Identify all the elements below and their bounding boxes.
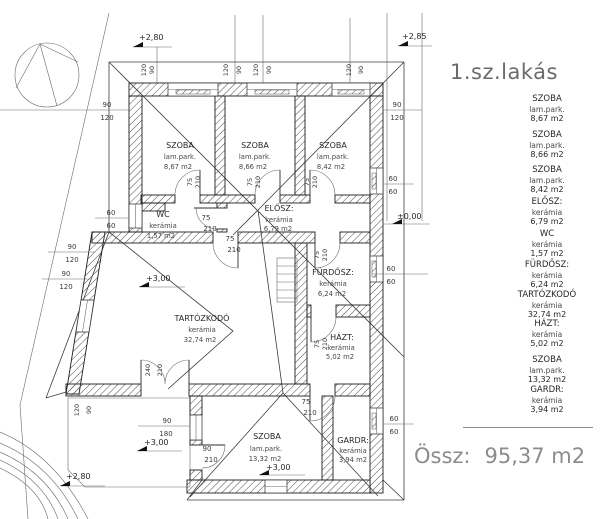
svg-text:13,32 m2: 13,32 m2 — [249, 455, 282, 463]
svg-text:ELŐSZ:: ELŐSZ: — [264, 203, 293, 213]
svg-text:210: 210 — [254, 176, 262, 188]
level-living: +3,00 — [146, 274, 171, 283]
svg-text:SZOBA: SZOBA — [319, 141, 347, 150]
svg-text:kerámia: kerámia — [327, 344, 355, 352]
svg-text:90: 90 — [62, 270, 71, 278]
legend-item-hazt: HÁZT: kerámia 5,02 m2 — [492, 319, 600, 349]
svg-text:8,42 m2: 8,42 m2 — [317, 163, 345, 171]
svg-text:32,74 m2: 32,74 m2 — [184, 336, 217, 344]
svg-text:120: 120 — [252, 64, 260, 76]
room-labels: SZOBA lam.park. 8,67 m2 SZOBA lam.park. … — [147, 141, 369, 464]
svg-text:lam.park.: lam.park. — [317, 153, 349, 161]
level-bedroom: +3,00 — [266, 463, 291, 472]
svg-text:210: 210 — [321, 249, 329, 261]
window — [76, 300, 94, 332]
svg-text:240: 240 — [144, 364, 152, 376]
level-top-right: +2,85 — [402, 32, 427, 41]
svg-text:75: 75 — [246, 178, 254, 186]
svg-text:90: 90 — [393, 101, 402, 109]
level-terrace: +3,00 — [144, 438, 169, 447]
svg-text:120: 120 — [140, 64, 148, 76]
north-arrow-icon — [15, 43, 79, 107]
window — [370, 256, 383, 282]
room-label-gardr: GARDR: kerámia 3,94 m2 — [337, 436, 368, 464]
svg-text:120: 120 — [222, 64, 230, 76]
svg-text:WC: WC — [156, 210, 170, 219]
room-label-hazt: HÁZT: kerámia 5,02 m2 — [326, 331, 355, 361]
svg-text:210: 210 — [156, 364, 164, 376]
svg-text:75: 75 — [313, 340, 321, 348]
legend-item-szoba4: SZOBA lam.park. 13,32 m2 — [492, 355, 600, 385]
svg-text:8,66 m2: 8,66 m2 — [239, 163, 267, 171]
svg-text:60: 60 — [390, 415, 399, 423]
svg-text:60: 60 — [387, 265, 396, 273]
legend-item-szoba2: SZOBA lam.park. 8,66 m2 — [492, 130, 600, 160]
svg-text:90: 90 — [85, 406, 93, 414]
window — [265, 480, 287, 493]
svg-text:120: 120 — [390, 114, 403, 122]
svg-text:kerámia: kerámia — [339, 447, 367, 455]
svg-text:6,24 m2: 6,24 m2 — [318, 290, 346, 298]
svg-text:210: 210 — [311, 176, 319, 188]
room-label-szoba2: SZOBA lam.park. 8,66 m2 — [239, 141, 271, 171]
svg-text:SZOBA: SZOBA — [253, 432, 281, 441]
svg-text:120: 120 — [73, 404, 81, 416]
total-area: Össz:95,37 m2 — [414, 444, 585, 468]
svg-text:kerámia: kerámia — [188, 326, 216, 334]
svg-text:60: 60 — [387, 278, 396, 286]
legend-item-szoba3: SZOBA lam.park. 8,42 m2 — [492, 165, 600, 195]
svg-text:60: 60 — [389, 175, 398, 183]
svg-text:60: 60 — [107, 209, 116, 217]
room-label-szoba1: SZOBA lam.park. 8,67 m2 — [164, 141, 196, 171]
room-label-szoba4: SZOBA lam.park. 13,32 m2 — [249, 432, 282, 463]
svg-text:90: 90 — [265, 66, 273, 74]
svg-text:210: 210 — [227, 246, 240, 254]
svg-text:90: 90 — [163, 417, 172, 425]
legend-item-furdosz: FÜRDŐSZ: kerámia 6,24 m2 — [492, 260, 600, 290]
legend-item-wc: WC kerámia 1,57 m2 — [492, 229, 600, 259]
svg-text:60: 60 — [107, 222, 116, 230]
svg-text:120: 120 — [100, 114, 113, 122]
legend-divider — [463, 427, 593, 428]
room-label-szoba3: SZOBA lam.park. 8,42 m2 — [317, 141, 349, 171]
legend-item-tartozkodo: TARTÓZKODÓ kerámia 32,74 m2 — [492, 290, 600, 320]
svg-text:75: 75 — [186, 178, 194, 186]
drawing-title: 1.sz.lakás — [450, 60, 558, 84]
svg-text:1,57 m2: 1,57 m2 — [147, 232, 175, 240]
svg-text:kerámia: kerámia — [319, 280, 347, 288]
room-label-wc: WC kerámia 1,57 m2 — [147, 210, 177, 240]
svg-text:120: 120 — [65, 256, 78, 264]
level-terrace-corner: +2,80 — [66, 472, 91, 481]
svg-text:210: 210 — [194, 176, 202, 188]
svg-text:90: 90 — [103, 101, 112, 109]
svg-text:210: 210 — [204, 456, 217, 464]
svg-text:90: 90 — [68, 243, 77, 251]
window — [129, 204, 142, 228]
svg-text:75: 75 — [202, 214, 211, 222]
svg-text:210: 210 — [303, 409, 316, 417]
window — [332, 83, 370, 96]
svg-text:90: 90 — [235, 66, 243, 74]
window — [168, 83, 218, 96]
svg-text:lam.park.: lam.park. — [164, 153, 196, 161]
svg-text:SZOBA: SZOBA — [241, 141, 269, 150]
svg-text:75: 75 — [302, 398, 311, 406]
svg-text:kerámia: kerámia — [265, 216, 293, 224]
svg-text:3,94 m2: 3,94 m2 — [339, 456, 367, 464]
svg-text:60: 60 — [390, 428, 399, 436]
svg-text:lam.park.: lam.park. — [239, 153, 271, 161]
svg-text:210: 210 — [203, 225, 216, 233]
svg-text:6,79 m2: 6,79 m2 — [264, 225, 292, 233]
window — [247, 83, 297, 96]
svg-text:SZOBA: SZOBA — [166, 141, 194, 150]
level-entry: ±0,00 — [397, 212, 422, 221]
svg-text:180: 180 — [159, 430, 172, 438]
svg-text:75: 75 — [313, 251, 321, 259]
dimension-labels: 90120 6060 90120 90120 90120 6060 6060 6… — [59, 101, 403, 464]
svg-text:75: 75 — [303, 178, 311, 186]
svg-text:kerámia: kerámia — [149, 222, 177, 230]
level-top-left: +2,80 — [139, 33, 164, 42]
window — [370, 408, 383, 434]
window — [370, 168, 383, 194]
svg-text:5,02 m2: 5,02 m2 — [326, 353, 354, 361]
total-area-label: Össz: — [414, 444, 471, 468]
svg-text:75: 75 — [226, 235, 235, 243]
room-label-elosz: ELŐSZ: kerámia 6,79 m2 — [264, 203, 294, 233]
legend-item-szoba1: SZOBA lam.park. 8,67 m2 — [492, 94, 600, 124]
svg-text:lam.park.: lam.park. — [250, 445, 282, 453]
svg-text:90: 90 — [203, 445, 212, 453]
floor-plan-sheet: +2,80 +2,85 ±0,00 +3,00 +3,00 +2,80 +3,0… — [0, 0, 600, 519]
total-area-value: 95,37 m2 — [485, 444, 586, 468]
svg-text:GARDR:: GARDR: — [337, 436, 368, 445]
svg-text:HÁZT:: HÁZT: — [330, 331, 354, 342]
legend-item-elosz: ELŐSZ: kerámia 6,79 m2 — [492, 197, 600, 227]
svg-text:120: 120 — [59, 283, 72, 291]
attic-ladder — [277, 258, 297, 302]
svg-text:90: 90 — [148, 66, 156, 74]
svg-text:90: 90 — [357, 66, 365, 74]
svg-text:8,67 m2: 8,67 m2 — [164, 163, 192, 171]
room-label-furdosz: FÜRDŐSZ: kerámia 6,24 m2 — [312, 267, 354, 298]
window — [190, 415, 202, 440]
svg-text:TARTÓZKODÓ: TARTÓZKODÓ — [174, 312, 230, 323]
room-label-tartozkodo: TARTÓZKODÓ kerámia 32,74 m2 — [174, 312, 230, 344]
svg-text:60: 60 — [389, 188, 398, 196]
svg-text:120: 120 — [345, 64, 353, 76]
svg-text:FÜRDŐSZ:: FÜRDŐSZ: — [312, 267, 354, 277]
legend-item-gardr: GARDR: kerámia 3,94 m2 — [492, 385, 600, 415]
